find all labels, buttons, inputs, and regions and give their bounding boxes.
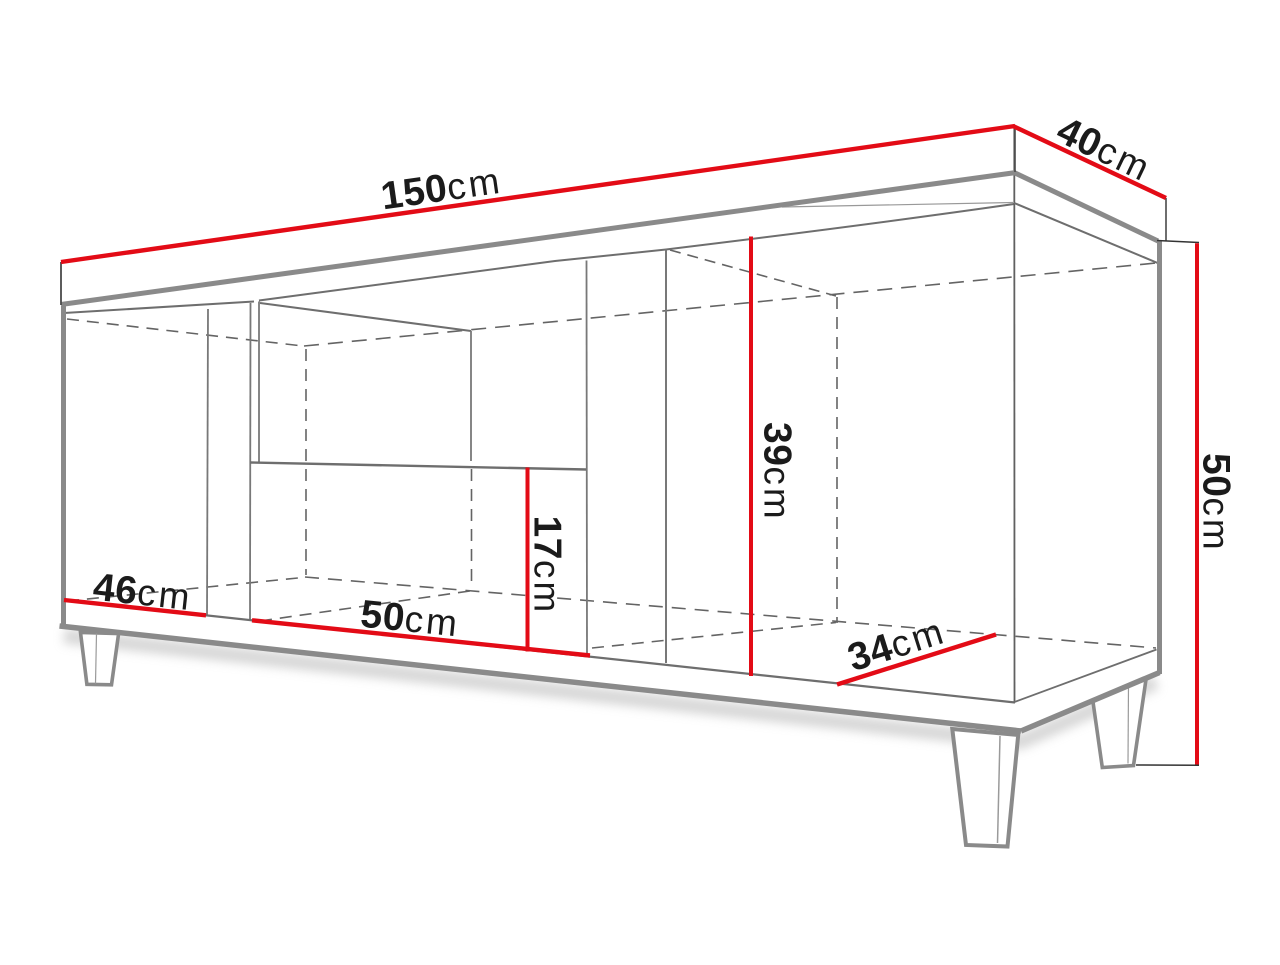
svg-text:17cm: 17cm <box>526 516 569 616</box>
svg-text:50cm: 50cm <box>1195 453 1238 553</box>
svg-text:39cm: 39cm <box>756 422 799 522</box>
